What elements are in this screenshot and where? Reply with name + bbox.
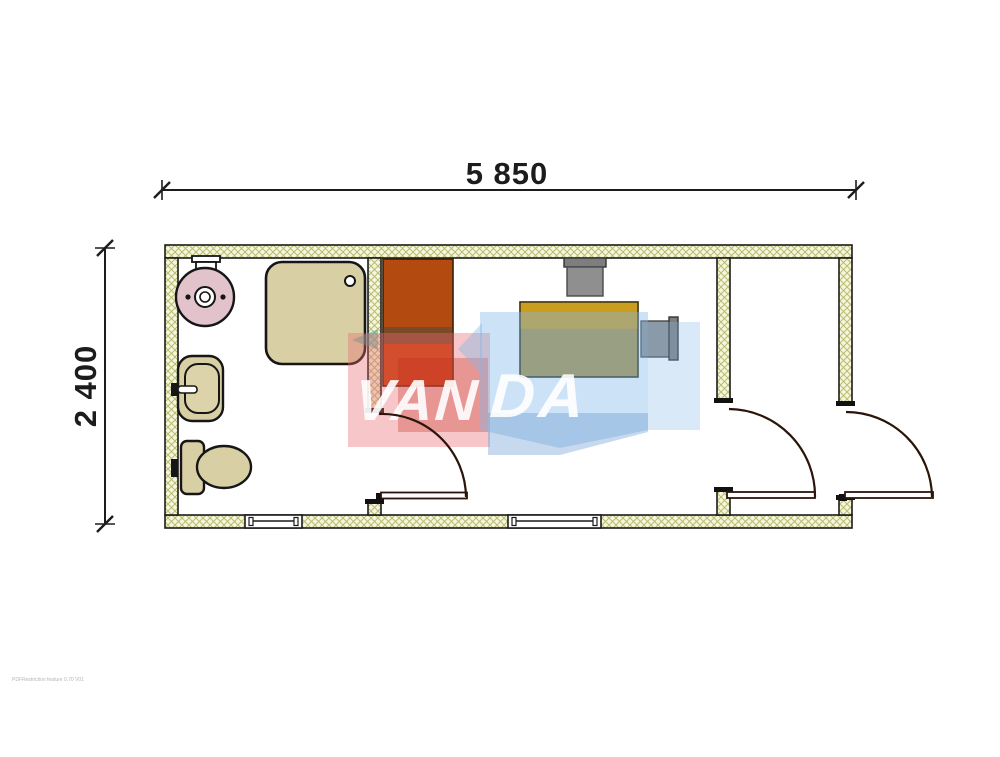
- vanda-watermark: VAN DA: [348, 312, 700, 455]
- partition-middle: [717, 258, 730, 402]
- middle-room-door: [727, 409, 815, 498]
- water-heater: [176, 256, 234, 326]
- washbasin-wall-mount: [171, 383, 178, 396]
- fineprint-watermark-text: PDFRestriction feature 0.70 V01: [12, 677, 132, 683]
- toilet: [171, 441, 251, 494]
- floor-plan-canvas: 5 850 2 400: [0, 0, 1000, 757]
- chair-top-seat: [567, 267, 603, 296]
- jamb-middle-top: [714, 398, 733, 403]
- toilet-bowl: [197, 446, 251, 488]
- bathroom-door-leaf: [381, 493, 467, 499]
- watermark-blue-side: [648, 322, 700, 430]
- washbasin: [171, 356, 223, 421]
- office-window: [508, 515, 601, 528]
- watermark-text-van: VAN: [353, 368, 482, 433]
- chair-top-backrest: [564, 258, 606, 267]
- wall-right-corner: [839, 499, 852, 515]
- water-heater-dot-right: [220, 294, 225, 299]
- middle-door-leaf: [727, 492, 815, 498]
- water-heater-dot-left: [185, 294, 190, 299]
- jamb-exterior-top: [836, 401, 855, 406]
- exterior-door-leaf: [845, 492, 933, 498]
- exterior-door-arc: [846, 412, 932, 497]
- middle-door-arc: [729, 409, 815, 497]
- shower-drain: [345, 276, 355, 286]
- bathroom-window: [245, 515, 302, 528]
- wall-top: [165, 245, 852, 258]
- watermark-text-da: DA: [488, 362, 590, 431]
- water-heater-outlet: [200, 292, 210, 302]
- top-dimension: 5 850: [154, 156, 864, 200]
- top-dimension-label: 5 850: [466, 156, 549, 191]
- toilet-wall-mount: [171, 459, 178, 477]
- exterior-door: [839, 412, 933, 501]
- left-dimension-label: 2 400: [68, 345, 103, 428]
- floor-plan-drawing: 5 850 2 400: [0, 0, 1000, 757]
- wall-right-upper: [839, 258, 852, 405]
- left-dimension: 2 400: [68, 240, 115, 532]
- washbasin-tap: [178, 386, 197, 393]
- chair-top: [564, 258, 606, 296]
- bathroom-fixtures: [171, 256, 365, 494]
